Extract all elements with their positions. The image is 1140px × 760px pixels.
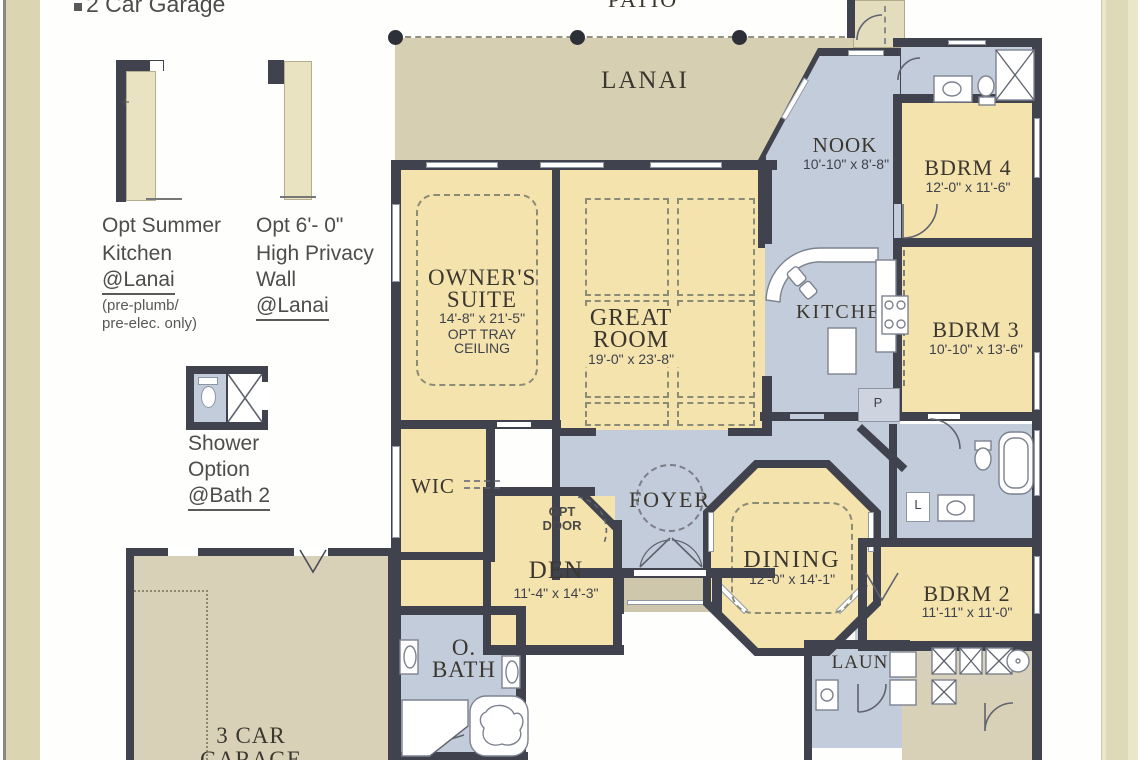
bath3-window [948, 40, 986, 45]
nook-top-window [848, 50, 884, 56]
kitchen-label: KITCHEN [796, 302, 890, 323]
laundry-top-wall [804, 640, 910, 649]
great-coffer-5 [585, 402, 669, 426]
note-privacy-wall-3: Wall [256, 268, 296, 292]
obath-bottom-wall [391, 752, 528, 760]
nook-label: NOOK [810, 134, 880, 156]
porch-stub-right [712, 574, 722, 614]
patio-wall-stub [847, 0, 855, 38]
bdrm2-top-wall [858, 538, 1040, 547]
hall-opening-gap [790, 414, 824, 419]
bath2-floor [897, 424, 1033, 540]
laundry-left-wall [804, 640, 812, 760]
great-coffer-6 [677, 402, 755, 426]
patio-label: PATIO [598, 0, 688, 11]
bdrm3-bottom-wall [893, 412, 1040, 421]
wall-detail-a-tick [146, 198, 182, 200]
garage3-door-gap2 [294, 548, 328, 556]
note-summer-kitchen-2: Kitchen [102, 242, 172, 266]
great-right-stub-top [762, 160, 772, 244]
plus-mark: + [121, 94, 130, 111]
lanai-column-2 [570, 30, 585, 45]
note-privacy-wall-2: High Privacy [256, 242, 374, 266]
great-coffer-2 [677, 198, 755, 296]
bdrm4-bdrm3-wall [893, 238, 1040, 247]
note-summer-kitchen-1: Opt Summer [102, 214, 221, 238]
bullet-square [74, 3, 82, 11]
window-left-2 [392, 446, 400, 538]
entry-porch-step [627, 600, 711, 605]
bdrm4-label: BDRM 4 [922, 156, 1014, 179]
owners-great-wall [552, 170, 560, 428]
owners-bottom-wall [391, 420, 561, 429]
bath3-floor [901, 47, 1033, 97]
bdrm4-dims: 12'-0" x 11'-6" [916, 180, 1020, 195]
pantry-label: P [868, 396, 888, 410]
bdrm2-label: BDRM 2 [912, 582, 1022, 605]
great-room-label-2: ROOM [579, 328, 683, 353]
wall-detail-b-tick [280, 196, 316, 198]
note-shower-option-3: @Bath 2 [188, 484, 270, 511]
great-coffer-4 [677, 300, 755, 398]
window-left-1 [392, 204, 400, 282]
lanai-label: LANAI [600, 68, 690, 94]
bdrm3-label: BDRM 3 [930, 318, 1022, 341]
porch-stub-left [614, 574, 624, 614]
note-shower-option-1: Shower [188, 432, 259, 456]
shower-diagram-stall [228, 374, 262, 422]
window-top-3 [650, 162, 722, 168]
garage3-bay-dotted-h [134, 590, 208, 592]
window-top-2 [540, 162, 604, 168]
owners-suite-label-2: SUITE [428, 288, 536, 312]
owners-suite-dims: 14'-8" x 21'-5" [424, 311, 540, 326]
great-room-dims: 19'-0" x 23'-8" [575, 352, 687, 367]
garage3-label-1: 3 CAR [176, 724, 326, 748]
note-summer-kitchen-sub2: pre-elec. only) [102, 315, 197, 332]
dining-label: DINING [727, 548, 857, 573]
window-top-1 [426, 162, 498, 168]
linen-label: L [910, 498, 926, 512]
obath-label-2: BATH [428, 658, 500, 682]
den-label: DEN [524, 558, 588, 584]
den-dims: 11'-4" x 14'-3" [510, 586, 602, 601]
note-summer-kitchen-3: @Lanai [102, 268, 175, 295]
toilet-tank-icon [198, 377, 218, 385]
garage2-floor [902, 682, 1033, 760]
wic-bottom-wall [391, 552, 495, 560]
entry-porch-floor [624, 578, 714, 612]
note-summer-kitchen-sub1: (pre-plumb/ [102, 297, 179, 314]
great-foyer-stub-left [552, 428, 596, 436]
window-right-bdrm4 [1034, 118, 1040, 178]
den-bottom-wall [483, 645, 624, 655]
dining-dims: 12'-0" x 14'-1" [725, 572, 859, 587]
window-right-bdrm3 [1034, 352, 1040, 410]
obath-top-wall [391, 606, 526, 615]
foyer-label: FOYER [622, 488, 718, 511]
nook-dims: 10'-10" x 8'-8" [800, 157, 892, 172]
great-foyer-stub-right [728, 428, 772, 436]
obath-right-wall [516, 606, 526, 760]
bdrm4-door-gap [894, 204, 901, 238]
owners-door-gap [497, 422, 531, 427]
note-shower-option-2: Option [188, 458, 250, 482]
bdrm2-left-wall [858, 538, 867, 650]
bath2-left-wall [889, 424, 897, 540]
page-edge-right-shade [1106, 0, 1128, 760]
bdrm3-door-gap [928, 414, 960, 419]
patio-door-dashed [884, 6, 886, 44]
floor-plan-page: 2 Car Garage Opt Summer Kitchen @Lanai (… [0, 0, 1140, 760]
great-right-stub-bottom [762, 376, 772, 432]
wall-detail-a-notch [150, 61, 163, 71]
bdrm3-dims: 10'-10" x 13'-6" [922, 342, 1030, 357]
bath3-bdrm4-wall [893, 94, 1040, 103]
opt-door-label-2: DOOR [536, 519, 588, 533]
window-right-bath2 [1034, 430, 1040, 496]
garage3-door-gap1 [168, 548, 198, 556]
den-left-wall [483, 487, 491, 655]
owners-suite-opt-2: CEILING [428, 341, 536, 356]
garage3-label-2: GARAGE [176, 748, 326, 760]
shower-diagram-door-gap [262, 382, 268, 410]
wall-detail-a-side [116, 60, 126, 202]
great-coffer-1 [585, 198, 669, 296]
wall-detail-b-fill [284, 61, 312, 200]
wall-detail-b-cap [268, 60, 284, 84]
window-right-bdrm2 [1034, 556, 1040, 614]
utility-floor [902, 648, 1033, 682]
lanai-column-1 [388, 30, 403, 45]
dining-window-w [708, 512, 714, 552]
utility-right-wall [1032, 648, 1042, 760]
laundry-label: LAUN [820, 653, 900, 673]
entry-door-gap [634, 570, 706, 576]
wic-label: WIC [404, 475, 462, 497]
note-privacy-wall-1: Opt 6'- 0" [256, 214, 343, 238]
note-privacy-wall-4: @Lanai [256, 294, 329, 321]
wall-detail-a-fill [126, 71, 156, 201]
note-2-car-garage: 2 Car Garage [86, 0, 225, 17]
page-edge-left [6, 0, 40, 760]
toilet-bowl-icon [201, 386, 216, 408]
bdrm2-dims: 11'-11" x 11'-0" [906, 605, 1028, 620]
lanai-column-3 [732, 30, 747, 45]
